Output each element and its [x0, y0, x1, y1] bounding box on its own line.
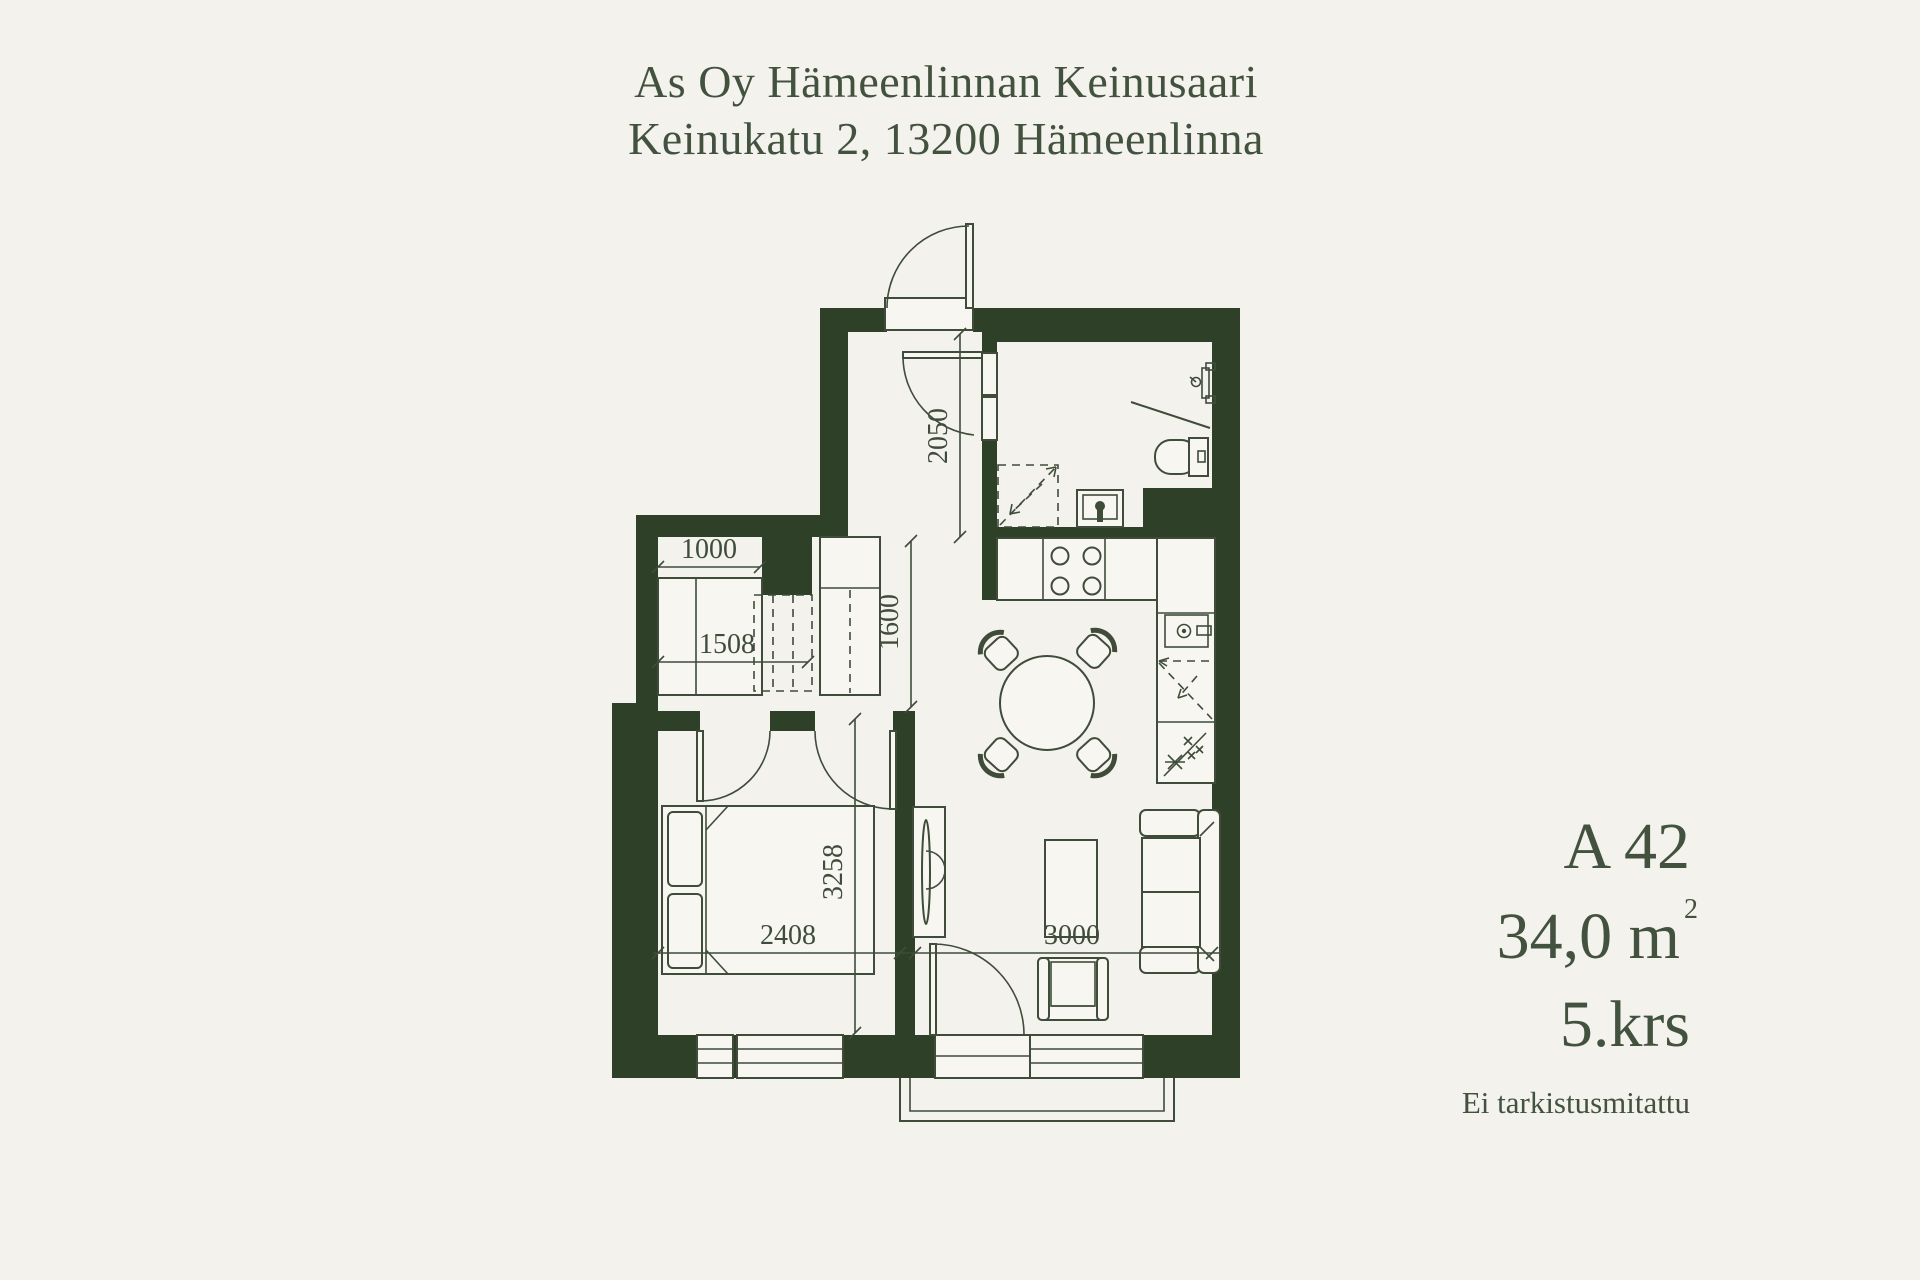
wall-bath-kitchen — [982, 527, 1212, 538]
tv-icon — [922, 820, 930, 924]
bathroom-door-leaf — [903, 352, 982, 358]
page-title: As Oy Hämeenlinnan Keinusaari Keinukatu … — [628, 56, 1264, 164]
apartment-note: Ei tarkistusmitattu — [1462, 1085, 1690, 1120]
dim-closet-depth: 1508 — [699, 629, 755, 660]
kitchen-counter — [997, 538, 1157, 600]
floor-plan-canvas: As Oy Hämeenlinnan Keinusaari Keinukatu … — [0, 0, 1920, 1280]
hall-cabinet — [820, 537, 880, 695]
apartment-floor: 5.krs — [1560, 988, 1690, 1061]
balcony-door-swing — [933, 944, 1024, 1035]
entrance-door-leaf — [966, 224, 973, 308]
pillow — [668, 894, 702, 968]
tv-bench — [913, 807, 945, 937]
bedroom-door-2-swing — [815, 731, 893, 809]
bedroom-door-2-leaf — [890, 731, 896, 809]
wall-bedroom-left — [612, 703, 658, 1078]
entrance-door — [885, 224, 973, 330]
balcony-door-sill — [935, 1035, 1030, 1078]
bedroom-door-1 — [697, 731, 770, 801]
window-bedroom-1 — [697, 1035, 733, 1078]
title-line-1: As Oy Hämeenlinnan Keinusaari — [634, 56, 1258, 107]
entrance-sill — [885, 298, 973, 330]
wall-closet-left — [636, 515, 658, 703]
dining-chair — [975, 627, 1022, 674]
armchair — [1038, 958, 1108, 1020]
balcony-door — [930, 944, 1024, 1035]
dim-bedroom-width: 2408 — [760, 920, 816, 951]
dining-chair — [1073, 625, 1120, 672]
wall-closet-top — [636, 515, 848, 537]
toilet-icon — [1155, 438, 1208, 476]
bedroom-door-1-swing — [700, 731, 770, 801]
dim-closet-width: 1000 — [681, 534, 737, 565]
floor-plan-poster: As Oy Hämeenlinnan Keinusaari Keinukatu … — [0, 0, 1920, 1280]
window-living — [1030, 1035, 1143, 1078]
apartment-area-superscript: 2 — [1684, 894, 1698, 925]
shower-screen — [1131, 402, 1210, 428]
dim-nook: 1600 — [874, 594, 905, 650]
sofa — [1140, 810, 1220, 973]
wall-hall-left — [820, 308, 848, 537]
wall-closet-chunk — [762, 537, 812, 595]
title-line-2: Keinukatu 2, 13200 Hämeenlinna — [628, 113, 1264, 164]
balcony-railing — [900, 1078, 1174, 1121]
dining-table — [1000, 656, 1094, 750]
bathroom-door-frame-bottom — [982, 397, 997, 440]
wall-top-pier — [973, 308, 997, 332]
bathroom-sink — [1077, 490, 1123, 527]
wall-bath-bottom-right — [1143, 488, 1212, 527]
window-bedroom-2 — [737, 1035, 843, 1078]
dining-chair — [1073, 734, 1120, 781]
dim-bedroom-length: 3258 — [818, 844, 849, 900]
dining-chair — [975, 734, 1022, 781]
bedroom-doorway-1 — [700, 711, 770, 731]
entrance-door-swing — [887, 226, 969, 308]
dim-living-width: 3000 — [1044, 920, 1100, 951]
dining-set — [975, 625, 1120, 782]
apartment-info: A 42 34,0 m 2 5.krs Ei tarkistusmitattu — [1462, 810, 1698, 1120]
bedroom-door-1-leaf — [697, 731, 703, 801]
pillow — [668, 812, 702, 886]
apartment-area: 34,0 m — [1497, 900, 1680, 973]
washer-reservation — [998, 465, 1058, 527]
shower-mixer-icon — [1190, 363, 1215, 403]
wall-top-bathroom — [997, 308, 1240, 342]
living-furniture — [1038, 810, 1220, 1020]
apartment-number: A 42 — [1563, 810, 1690, 883]
balcony-door-leaf — [930, 944, 936, 1035]
dim-hallway: 2050 — [923, 408, 954, 464]
bathroom-door-frame-top — [982, 353, 997, 395]
